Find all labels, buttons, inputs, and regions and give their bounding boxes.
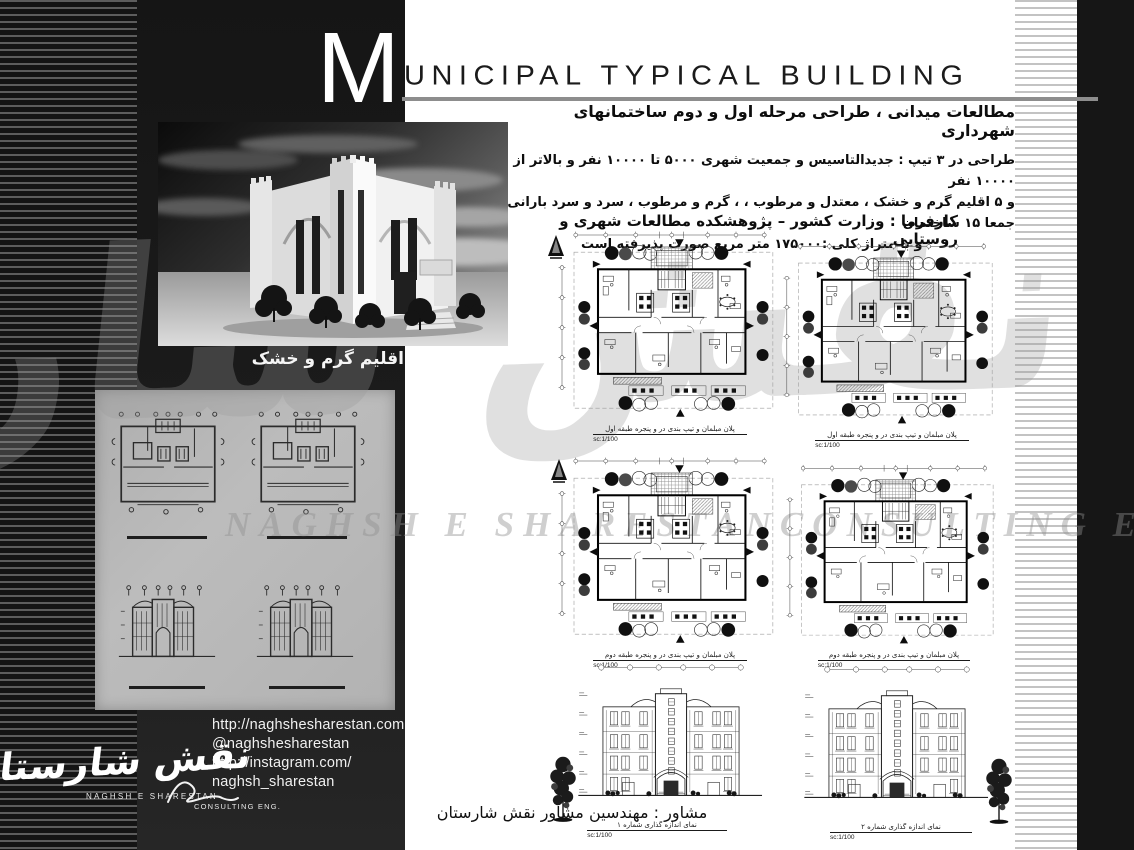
website-link: http://naghshesharestan.com xyxy=(212,716,404,735)
sketch-title-bar xyxy=(127,536,207,539)
consultant-line: مشاور : مهندسین مشاور نقش شارستان xyxy=(412,803,732,822)
floor-plan-2: پلان مبلمان و تیپ بندی در و پنجره طبقه ا… xyxy=(772,238,1012,449)
title-underline xyxy=(402,97,1098,101)
elevation-caption: نمای اندازه گذاری شماره ۱ xyxy=(587,821,727,831)
elevation-2: نمای اندازه گذاری شماره ۲ sc:1/100 xyxy=(790,658,1012,841)
north-arrow-icon xyxy=(546,234,566,260)
right-stripe-band xyxy=(1015,0,1077,850)
sketch-plan-1 xyxy=(107,406,229,520)
floor-plan-drawing xyxy=(550,226,790,424)
tree-drawing xyxy=(982,740,1016,832)
plan-scale: sc:1/100 xyxy=(593,436,747,443)
title-initial-m: M xyxy=(288,18,400,118)
sketch-panel xyxy=(95,390,395,710)
sketch-elevation-1 xyxy=(113,576,221,672)
elevation-caption: نمای اندازه گذاری شماره ۲ xyxy=(830,823,972,833)
plan-caption: پلان مبلمان و تیپ بندی در و پنجره طبقه ا… xyxy=(593,425,747,435)
floor-plan-1: پلان مبلمان و تیپ بندی در و پنجره طبقه ا… xyxy=(550,226,790,443)
page-title: UNICIPAL TYPICAL BUILDING xyxy=(404,61,969,92)
plan-caption: پلان مبلمان و تیپ بندی در و پنجره طبقه ا… xyxy=(815,431,969,441)
floor-plan-drawing xyxy=(775,460,1013,650)
logo-consulting-eng: CONSULTING ENG. xyxy=(194,802,281,811)
floor-plan-drawing xyxy=(772,238,1012,430)
sketch-elevation-2 xyxy=(251,576,359,672)
sketch-plan-2 xyxy=(247,406,369,520)
elevation-drawing xyxy=(562,656,780,820)
elevation-drawing xyxy=(790,658,1004,822)
sketch-title-bar xyxy=(267,536,347,539)
sketch-title-bar xyxy=(269,686,345,689)
elevation-scale: sc:1/100 xyxy=(587,832,727,839)
north-arrow-icon xyxy=(549,458,569,484)
floor-plan-drawing xyxy=(550,452,790,650)
right-black-band xyxy=(1077,0,1134,850)
elevation-scale: sc:1/100 xyxy=(830,834,972,841)
building-3d-render xyxy=(158,122,508,346)
company-logo: نقش شارستان NAGHSH E SHARESTAN CONSULTIN… xyxy=(34,740,284,840)
floor-plan-4: پلان مبلمان و تیپ بندی در و پنجره طبقه د… xyxy=(775,460,1013,669)
render-caption: اقلیم گرم و خشک xyxy=(158,349,404,369)
poster-page: نقش شارستان NAGHSH E SHARESTAN CONSULTIN… xyxy=(0,0,1134,850)
description-line-2: طراحی در ۳ تیپ : جدیدالتاسیس و جمعیت شهر… xyxy=(498,150,1015,192)
sketch-title-bar xyxy=(129,686,205,689)
floor-plan-3: پلان مبلمان و تیپ بندی در و پنجره طبقه د… xyxy=(550,452,790,669)
plan-scale: sc:1/100 xyxy=(815,442,969,449)
description-line-1: مطالعات میدانی ، طراحی مرحله اول و دوم س… xyxy=(498,102,1015,140)
